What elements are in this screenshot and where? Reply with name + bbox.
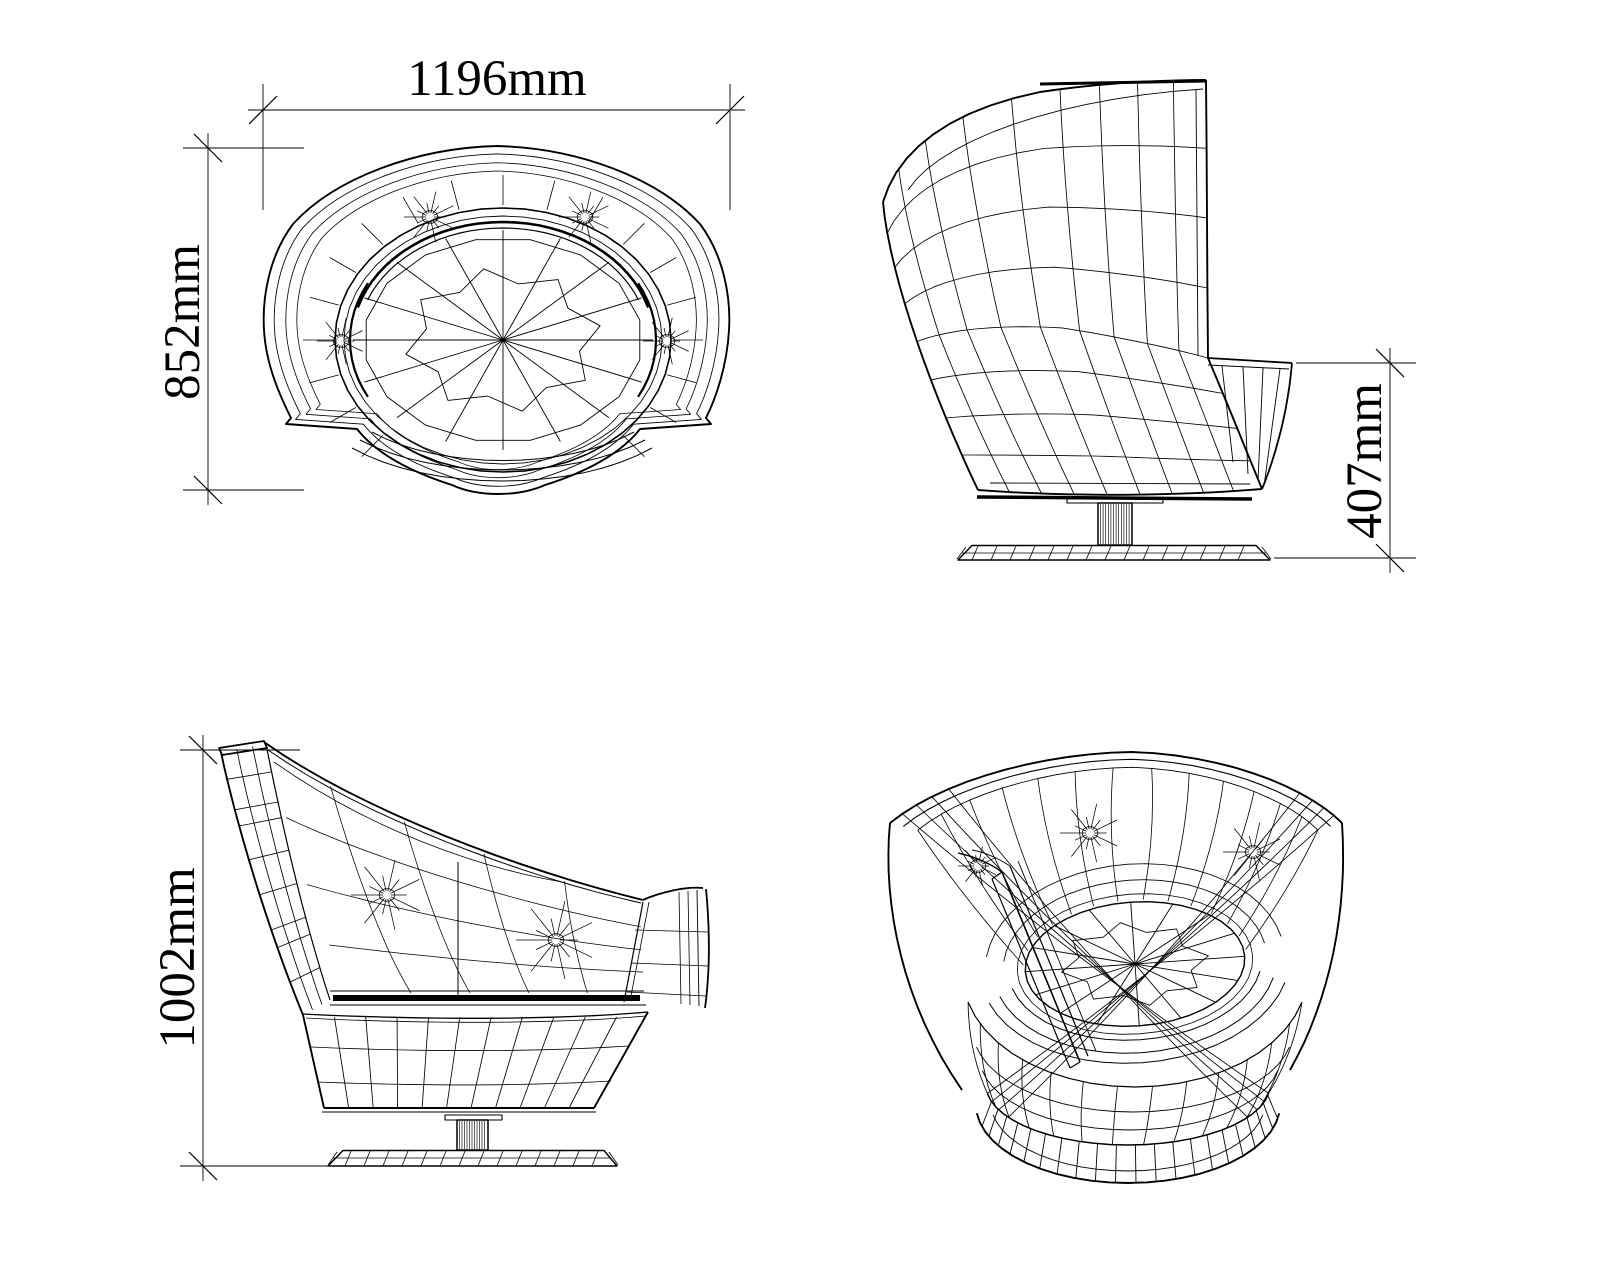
drawing-sheet: 1196mm 852mm 407mm 1002mm: [0, 0, 1600, 1280]
depth-dimension-label: 852mm: [155, 244, 211, 400]
seat-height-dimension: 407mm: [1274, 348, 1416, 573]
side-view-wireframe: [883, 80, 1292, 560]
chair-wireframe-drawing: 1196mm 852mm 407mm 1002mm: [0, 0, 1600, 1280]
top-view-wireframe: [264, 146, 730, 494]
width-dimension: 1196mm: [248, 51, 745, 210]
side-elevation-wireframe: [219, 741, 709, 1166]
width-dimension-label: 1196mm: [407, 51, 586, 107]
depth-dimension: 852mm: [155, 133, 304, 505]
perspective-view-wireframe: [888, 752, 1343, 1183]
overall-height-dimension-label: 1002mm: [150, 867, 206, 1048]
seat-height-dimension-label: 407mm: [1337, 383, 1393, 539]
